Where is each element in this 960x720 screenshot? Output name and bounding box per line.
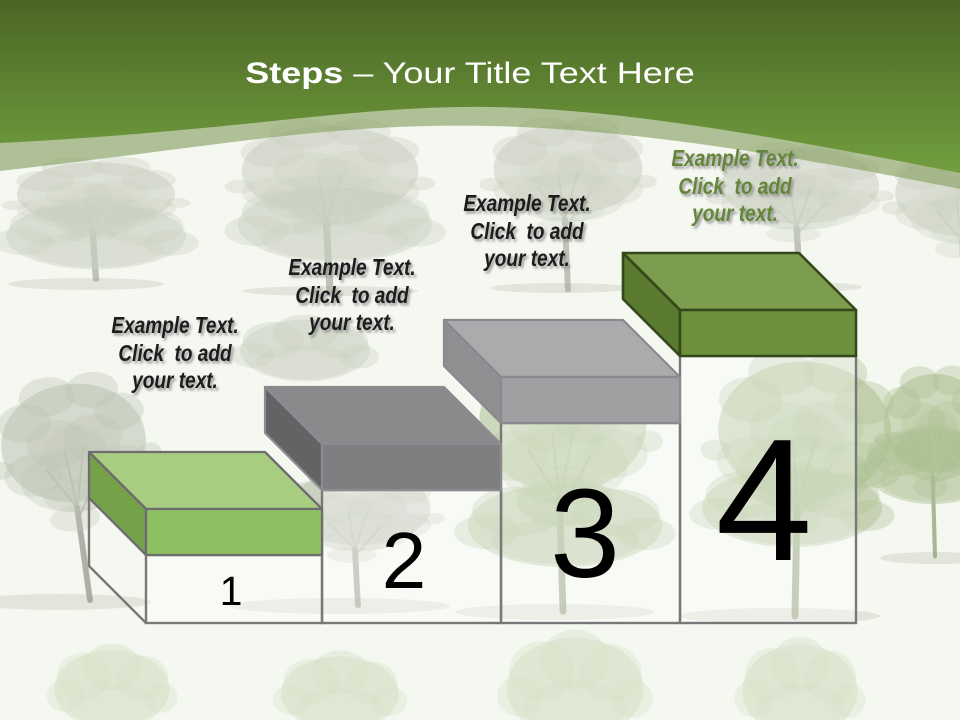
svg-text:4: 4 [716,402,813,597]
svg-text:3: 3 [550,463,620,604]
svg-text:2: 2 [382,516,427,605]
svg-text:1: 1 [220,568,243,614]
